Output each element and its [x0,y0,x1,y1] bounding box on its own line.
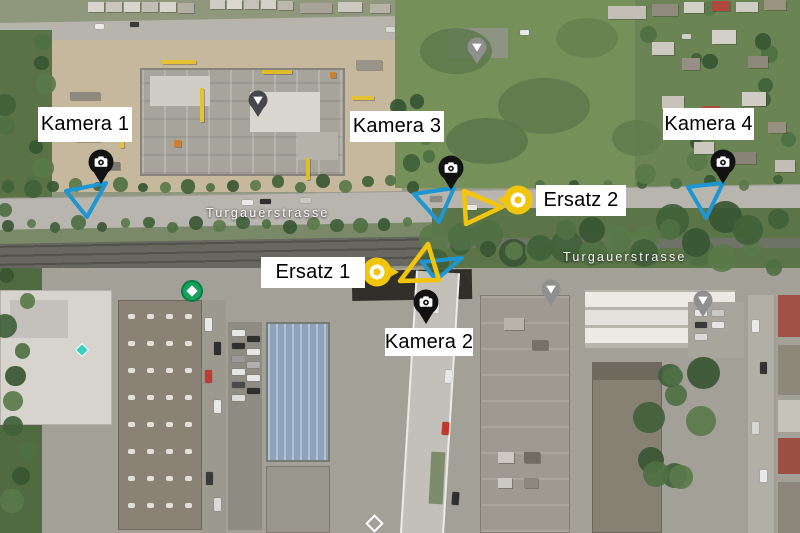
camera-label-kamera-1: Kamera 1 [38,107,132,142]
ersatz-label-1: Ersatz 1 [261,257,365,288]
map-canvas[interactable]: Kamera 1 Kamera 2 Kamera 3 Kamera 4 Ersa… [0,0,800,533]
camera-pin-kamera-4 [708,148,738,193]
ersatz-1-teardrop-marker [363,258,400,287]
fov-triangle-kamera-3-yellow [464,191,502,224]
camera-pin-kamera-3 [436,154,466,199]
ersatz-label-2: Ersatz 2 [536,185,626,216]
camera-pin-kamera-1 [86,148,116,193]
fov-triangle-kamera-2-blue [422,258,462,280]
ersatz-2-teardrop-marker [497,186,533,215]
camera-label-kamera-4: Kamera 4 [663,108,754,140]
camera-label-kamera-3: Kamera 3 [350,111,444,142]
camera-pin-kamera-2 [411,288,441,333]
camera-label-kamera-2: Kamera 2 [385,328,473,356]
